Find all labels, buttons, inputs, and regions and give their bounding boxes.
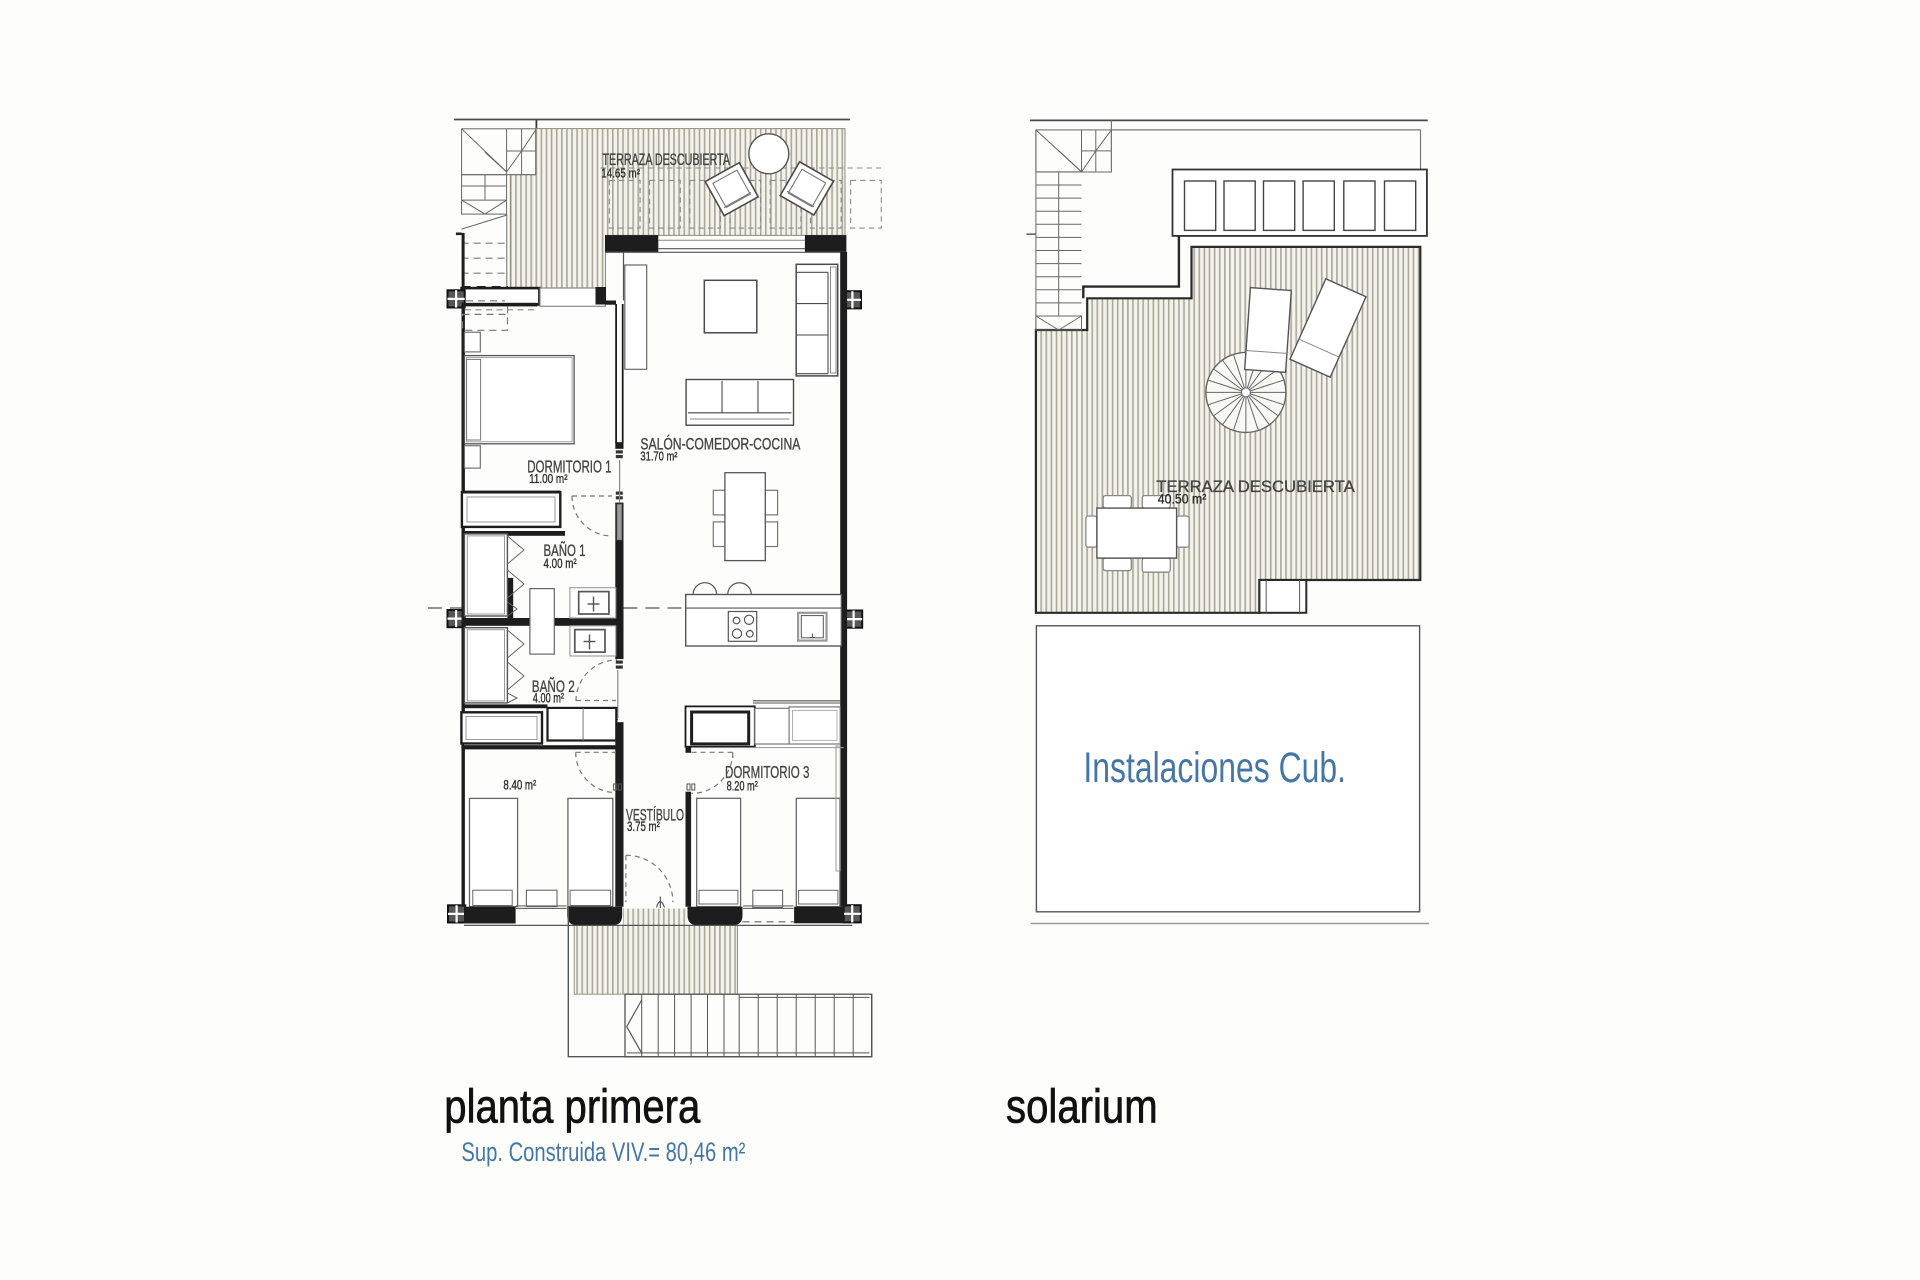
- svg-text:4.00 m²: 4.00 m²: [544, 556, 578, 571]
- svg-text:8.20 m²: 8.20 m²: [727, 778, 758, 794]
- svg-text:31.70 m²: 31.70 m²: [640, 449, 677, 464]
- svg-text:Sup. Construida VIV.= 80,46 m²: Sup. Construida VIV.= 80,46 m²: [461, 1137, 745, 1167]
- svg-text:40.50 m²: 40.50 m²: [1158, 492, 1207, 507]
- svg-text:3.75 m²: 3.75 m²: [627, 819, 660, 834]
- svg-text:8.40 m²: 8.40 m²: [503, 777, 536, 793]
- svg-text:solarium: solarium: [1006, 1080, 1158, 1133]
- svg-text:11.00 m²: 11.00 m²: [529, 471, 568, 486]
- svg-text:14.65 m²: 14.65 m²: [601, 166, 640, 181]
- svg-text:4.00 m²: 4.00 m²: [533, 691, 565, 706]
- svg-text:Instalaciones Cub.: Instalaciones Cub.: [1083, 745, 1346, 792]
- svg-text:planta primera: planta primera: [444, 1080, 701, 1133]
